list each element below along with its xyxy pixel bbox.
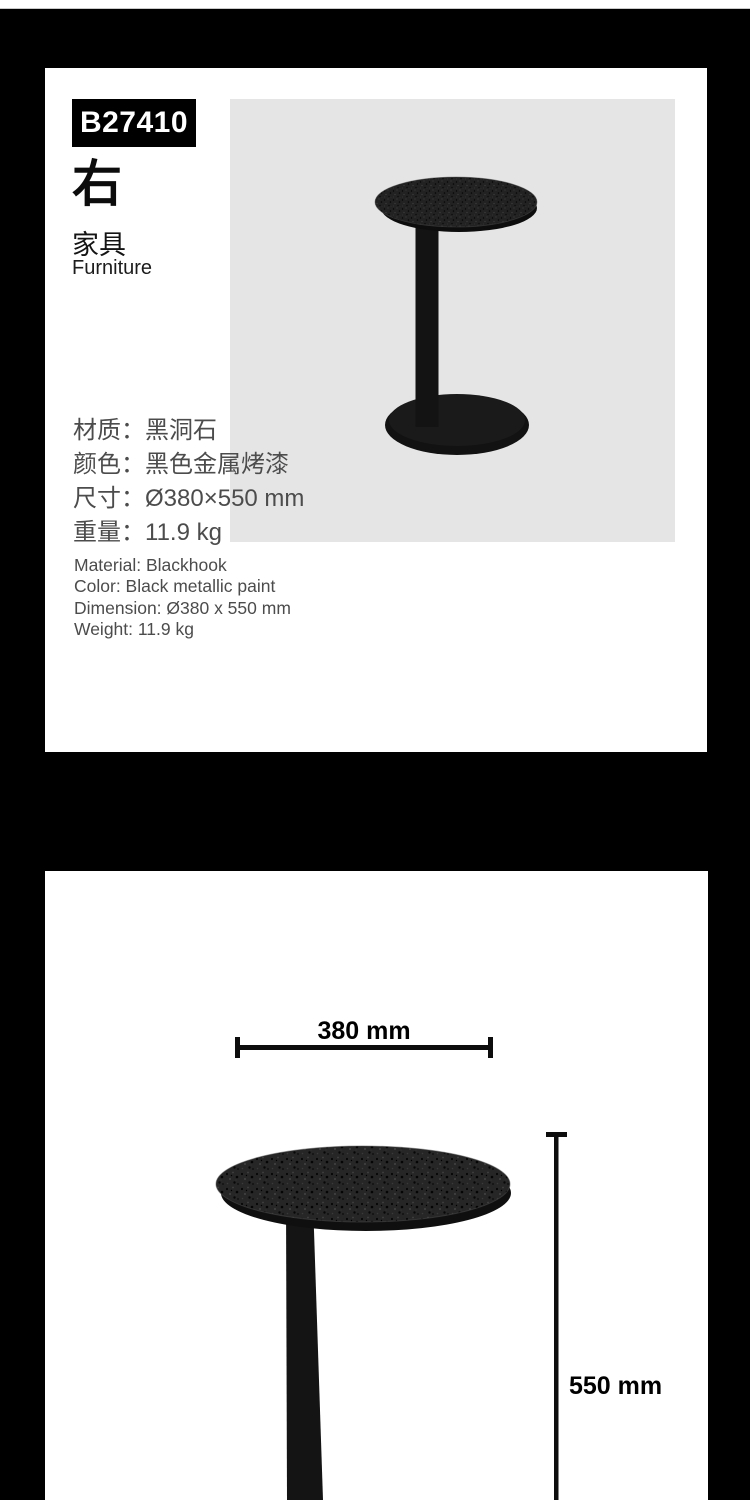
- model-number: B27410: [80, 106, 188, 140]
- tabletop: [375, 177, 537, 227]
- spec-material-en: Material: Blackhook: [74, 555, 291, 576]
- dimensions-card: 380 mm: [45, 871, 708, 1500]
- previous-section-edge: [0, 0, 750, 9]
- specs-english: Material: Blackhook Color: Black metalli…: [74, 555, 291, 641]
- dimension-diagram: [45, 871, 708, 1500]
- model-badge: B27410: [72, 99, 196, 147]
- specs-chinese: 材质：黑洞石 颜色：黑色金属烤漆 尺寸：Ø380×550 mm 重量：11.9 …: [73, 414, 304, 550]
- spec-color-en: Color: Black metallic paint: [74, 576, 291, 597]
- spec-dimension-en: Dimension: Ø380 x 550 mm: [74, 598, 291, 619]
- spec-weight-en: Weight: 11.9 kg: [74, 619, 291, 640]
- spec-material-cn: 材质：黑洞石: [73, 414, 304, 448]
- pedestal-column: [286, 1201, 323, 1500]
- product-info-card: B27410 右 家具 Furniture: [45, 68, 707, 752]
- spec-dimension-cn: 尺寸：Ø380×550 mm: [73, 482, 304, 516]
- pedestal-column: [416, 203, 439, 427]
- spec-color-cn: 颜色：黑色金属烤漆: [73, 448, 304, 482]
- width-dimension-line: [235, 1037, 493, 1058]
- product-detail-page: B27410 右 家具 Furniture: [0, 0, 750, 1500]
- product-title-cn: 右: [72, 156, 122, 214]
- table-closeup-illustration: [216, 1146, 511, 1500]
- tabletop: [216, 1146, 510, 1222]
- spec-weight-cn: 重量：11.9 kg: [73, 516, 304, 550]
- height-dimension-label: 550 mm: [569, 1371, 662, 1401]
- table-base-top: [389, 394, 525, 446]
- category-label-en: Furniture: [72, 257, 152, 280]
- height-dimension-line: [546, 1132, 567, 1500]
